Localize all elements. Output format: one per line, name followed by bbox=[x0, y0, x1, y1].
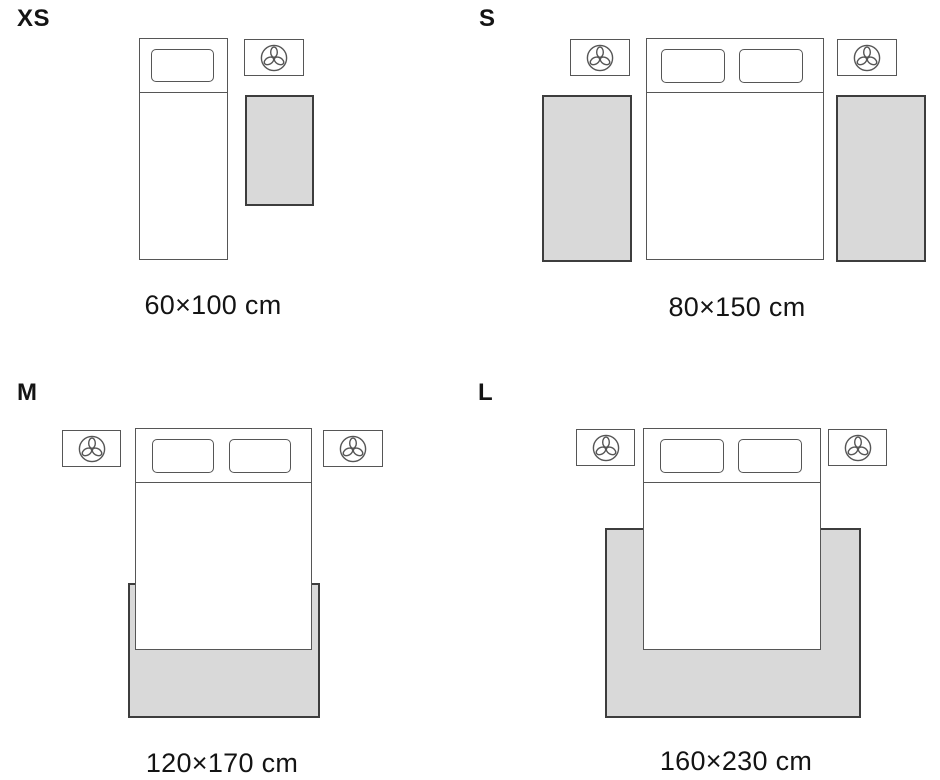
pillow bbox=[660, 439, 724, 473]
bed-headboard bbox=[644, 429, 820, 483]
plant-icon bbox=[843, 433, 873, 463]
size-caption-s: 80×150 cm bbox=[627, 293, 847, 323]
bed-headboard bbox=[140, 39, 227, 93]
size-label-m: M bbox=[17, 380, 38, 406]
rug-right bbox=[836, 95, 926, 262]
rug-size-guide-diagram: XS 60×100 cm S bbox=[0, 0, 940, 780]
size-caption-l: 160×230 cm bbox=[626, 747, 846, 777]
pillow bbox=[738, 439, 802, 473]
pillow bbox=[229, 439, 291, 473]
double-bed bbox=[135, 428, 312, 650]
pillow bbox=[151, 49, 214, 82]
nightstand bbox=[323, 430, 383, 467]
size-label-l: L bbox=[478, 380, 493, 406]
size-label-xs: XS bbox=[17, 6, 50, 32]
plant-icon bbox=[591, 433, 621, 463]
rug-left bbox=[542, 95, 632, 262]
nightstand bbox=[828, 429, 887, 466]
plant-icon bbox=[259, 43, 289, 73]
bed-headboard bbox=[136, 429, 311, 483]
plant-icon bbox=[852, 43, 882, 73]
size-caption-xs: 60×100 cm bbox=[103, 291, 323, 321]
plant-icon bbox=[338, 434, 368, 464]
nightstand bbox=[62, 430, 121, 467]
nightstand bbox=[244, 39, 304, 76]
plant-icon bbox=[585, 43, 615, 73]
pillow bbox=[739, 49, 803, 83]
double-bed bbox=[643, 428, 821, 650]
rug bbox=[245, 95, 314, 206]
pillow bbox=[152, 439, 214, 473]
single-bed bbox=[139, 38, 228, 260]
nightstand bbox=[837, 39, 897, 76]
pillow bbox=[661, 49, 725, 83]
nightstand bbox=[576, 429, 635, 466]
size-caption-m: 120×170 cm bbox=[112, 749, 332, 779]
bed-headboard bbox=[647, 39, 823, 93]
size-label-s: S bbox=[479, 6, 496, 32]
plant-icon bbox=[77, 434, 107, 464]
nightstand bbox=[570, 39, 630, 76]
double-bed bbox=[646, 38, 824, 260]
